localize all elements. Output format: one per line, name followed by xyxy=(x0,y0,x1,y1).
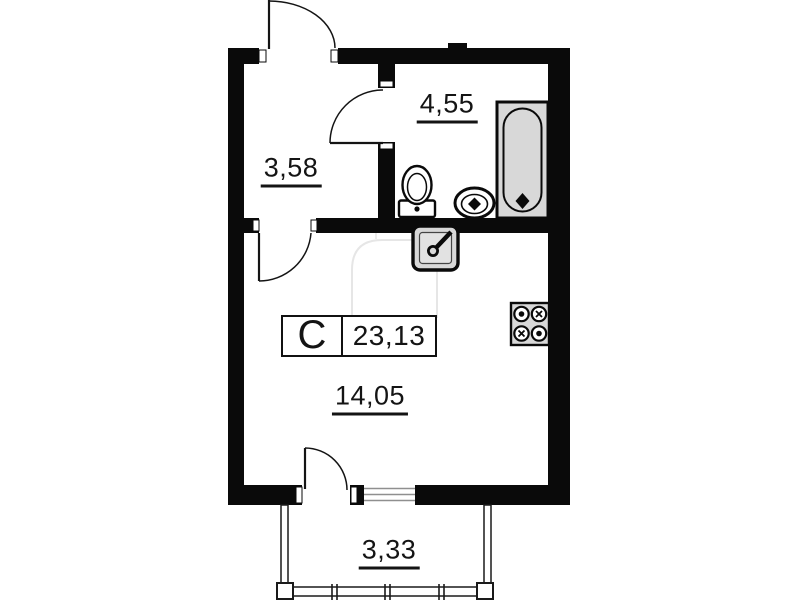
window-icon xyxy=(364,486,415,504)
burner-mark xyxy=(519,311,525,317)
jamb-cap xyxy=(380,81,393,87)
door-jamb-caps xyxy=(253,50,393,503)
jamb-cap xyxy=(296,487,302,503)
burner-mark xyxy=(536,331,542,337)
jamb-cap xyxy=(259,50,266,62)
living-room-area-label: 14,05 xyxy=(332,383,408,416)
bathroom-door-icon xyxy=(330,90,383,143)
bathroom-area-label: 4,55 xyxy=(417,91,478,124)
balcony-left-wall xyxy=(281,505,288,586)
hallway-area-label: 3,58 xyxy=(261,155,322,188)
entrance-door-icon xyxy=(269,0,335,49)
balcony-railing xyxy=(281,587,491,596)
balcony-area-label: 3,33 xyxy=(359,537,420,570)
bottom-wall-left xyxy=(228,485,302,505)
kitchen-sink-icon xyxy=(413,226,458,270)
floor-plan: 3,58 4,55 14,05 3,33 C 23,13 xyxy=(0,0,799,600)
unit-label-box: C 23,13 xyxy=(281,315,437,357)
floor-plan-drawing xyxy=(0,0,799,600)
balcony-corner-post xyxy=(277,583,293,599)
vent-nub xyxy=(448,43,467,49)
hall-door-icon xyxy=(259,233,311,281)
unit-type-letter: C xyxy=(283,317,343,355)
bathroom-wall-lower xyxy=(378,142,395,233)
balcony-corner-post xyxy=(477,583,493,599)
unit-total-area: 23,13 xyxy=(343,317,435,355)
toilet-icon xyxy=(399,166,435,217)
balcony-right-wall xyxy=(484,505,491,586)
jamb-cap xyxy=(311,220,317,231)
right-wall xyxy=(548,48,570,505)
sink-faucet-base xyxy=(428,246,437,255)
washbasin-icon xyxy=(455,188,494,218)
left-wall xyxy=(228,48,244,505)
stove-icon xyxy=(511,303,549,345)
bottom-wall-right xyxy=(415,485,570,505)
jamb-cap xyxy=(351,487,357,503)
top-wall-right xyxy=(338,48,570,64)
jamb-cap xyxy=(331,50,338,62)
balcony-door-icon xyxy=(305,448,347,490)
jamb-cap xyxy=(253,220,259,231)
bathtub-icon xyxy=(497,102,548,218)
toilet-button xyxy=(414,206,419,211)
